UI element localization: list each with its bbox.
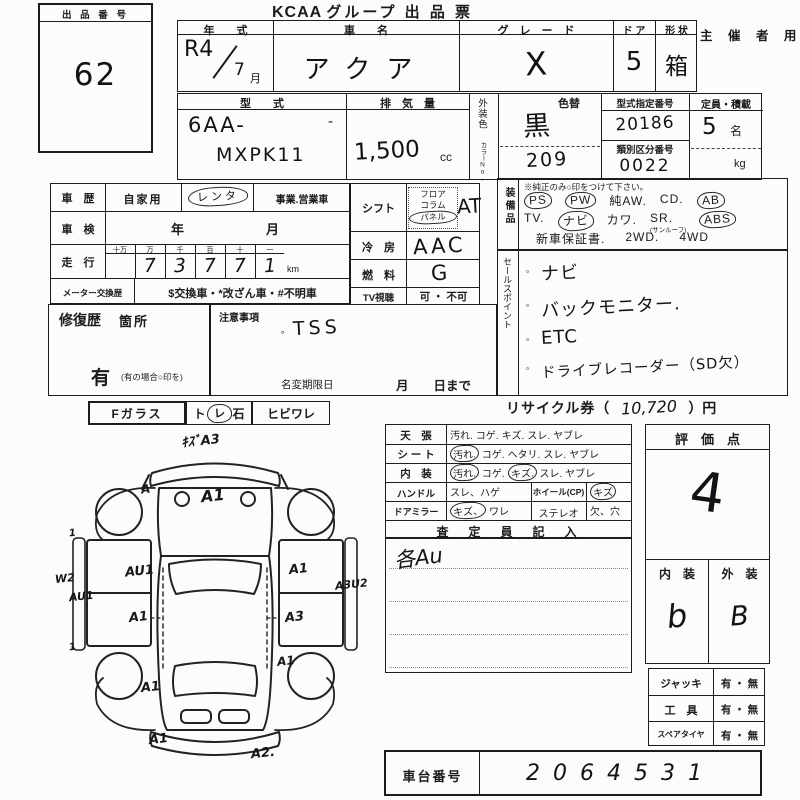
wheel-label: ホイール(CP) [531,486,586,498]
sales-points-label: セールスポイント [502,257,511,329]
shift-label: シフト [351,200,406,216]
damage-code: A3 [284,609,305,626]
bullet-mark: 。 [526,264,534,275]
jack-label: ジャッキ [649,676,713,691]
crack-option: ヒビワレ [252,401,330,425]
damage-code: A1 [140,679,161,696]
grade-value: X [458,41,614,87]
aircon-label: 冷 房 [351,239,406,255]
damage-annotations-layer: ｷｽﾞA3A1AAU1A1AU1W211A1A1A3A3U2A1A1A2. [55,428,375,775]
color-change-label: 色替 [558,95,580,111]
condition-table: 天 張 汚れ.コゲ.キズ.スレ.ヤブレ シ ー ト 汚れ.コゲ.ヘタリ.スレ.ヤ… [385,424,632,538]
accessories-table: ジャッキ 有 ・ 無 工 具 有 ・ 無 スペアタイヤ 有 ・ 無 [648,668,765,746]
grid-line [498,94,499,179]
front-glass-label: Fガラス [88,401,186,425]
meter-history-label: メーター交換歴 [51,287,134,299]
mileage-digit: 1 [254,254,285,278]
score-label: 評 価 点 [646,429,769,448]
sales-point-text: ETC [540,326,578,349]
option-item: ヘタリ. [508,446,541,461]
tools-value: 有 ・ 無 [713,702,766,717]
option-item: カワ. [607,211,637,228]
grid-line [649,721,764,722]
grid-line [351,287,479,288]
meter-history-options: $交換車・*改ざん車・#不明車 [134,285,351,301]
car-name-value: アクア [273,49,459,86]
option-item-circled: 汚れ. [450,444,480,462]
history-table: 車 歴 自家用 レンタ 事業.営業車 車 検 年 月 走 行 十万 万 千 百 … [50,183,350,304]
caution-value: TSS [292,316,341,340]
interior-grade-value: b [644,594,710,638]
grid-line [646,449,769,450]
repair-history-box: 修復歴 箇所 有 (有の場合○印を) [48,304,210,396]
history-business-option: 事業.営業車 [253,191,351,206]
option-item-circled: キズ [590,482,617,500]
tv-label: TV視聴 [351,290,406,304]
chassis-number-box: 車台番号 2064531 [384,750,762,796]
damage-code: AU1 [124,563,155,581]
color-value: 黒 [522,103,551,143]
drivetrain-table: シフト フロアコラムパネル AT 冷 房 AAC 燃 料 G TV視聴 可 ・ … [350,183,480,305]
stereo-label: ステレオ [531,505,586,520]
option-item: スレ、ハゲ [450,484,500,499]
mileage-digit: 7 [194,254,225,278]
dashed-divider [691,148,761,149]
mileage-digit: 3 [164,254,195,278]
equipment-box: 装備品 ※純正のみ○印をつけて下さい。 PSPW純AW.CD.AB TV.ナビカ… [497,178,788,250]
inspection-value: 年 月 [105,219,351,238]
vehicle-spec-table: 型 式 排 気 量 6AA- ‐ MXPK11 1,500 cc 外装色 カラー… [177,93,762,180]
interior-options: 汚れ.コゲ.キズ.スレ.ヤブレ [450,463,595,482]
mileage-digit-grid: 十万 万 千 百 十 一 7 3 7 7 1 [105,244,284,278]
headliner-label: 天 張 [386,428,446,443]
damage-code: A1 [200,485,225,506]
chassis-number-value: 2064531 [479,761,762,786]
interior-label: 内 装 [386,466,446,481]
auction-number-value: 62 [40,57,151,93]
sales-point-line: 。ナビ [526,259,783,285]
wheel-value: キズ [590,482,616,501]
damage-code: ｷｽﾞA3 [180,428,220,451]
form-title: KCAA グループ 出 品 票 [272,1,473,22]
type-approval-label: 型式指定番号 [601,96,689,110]
damage-code: A2. [250,745,275,762]
grid-line [181,184,182,211]
history-private-option: 自家用 [105,191,181,207]
grid-line [386,520,631,521]
aircon-value: AAC [412,233,466,260]
option-item: スレ. [543,446,566,461]
steering-label: ハンドル [386,486,446,500]
grid-line [51,211,349,212]
score-box: 評 価 点 4 内 装 外 装 b B [645,424,770,664]
option-item: CD. [660,192,684,206]
model-code-line2: MXPK11 [216,144,306,166]
grid-line [649,695,764,696]
exterior-grade-value: B [707,599,772,634]
sales-point-text: ドライブレコーダー（SD欠） [541,351,750,383]
grid-line [469,94,470,179]
model-code-line1: 6AA- [188,113,246,137]
sales-point-text: バックモニター. [540,289,681,322]
option-item: コラム [409,200,457,211]
grid-line [51,278,349,279]
inspection-label: 車 検 [51,221,105,237]
steering-options: スレ、ハゲ [450,482,500,501]
grid-line [406,184,407,304]
capacity-value: 5 [702,114,717,140]
ruled-line [389,601,628,602]
option-item-circled: 汚れ. [450,463,480,481]
auction-sheet: 出 品 番 号 62 KCAA グループ 出 品 票 主 催 者 用 年 式 車… [0,0,800,800]
capacity-unit2: kg [734,158,746,170]
assessor-notes-box: 各Au [385,538,632,673]
brand-logo: KCAA [272,4,322,21]
vehicle-header-table: 年 式 車 名 グ レ ー ド ド ア 形 状 R4 7 月 アクア X 5 箱 [177,20,697,92]
damage-code: A1 [128,609,149,626]
damage-code: AU1 [68,589,94,605]
form-title-text: グループ 出 品 票 [326,4,473,21]
seat-options: 汚れ.コゲ.ヘタリ.スレ.ヤブレ [450,444,599,463]
bullet-mark: 。 [526,361,534,372]
stone-chip-option: ト レ 石 [186,401,252,425]
option-item: ヤブレ [565,465,595,480]
capacity-unit: 名 [730,122,742,139]
equipment-line1: PSPW純AW.CD.AB [524,192,725,209]
spare-tire-label: スペアタイヤ [649,729,713,740]
mileage-unit: km [287,264,299,274]
option-item: フロア [409,189,457,200]
spare-tire-value: 有 ・ 無 [713,728,766,743]
option-item: キズ. [502,427,525,442]
caution-bullet: 。 [281,323,290,336]
history-rental-option: レンタ [183,187,253,206]
mileage-digit: 7 [224,254,255,278]
damage-code: 1 [68,642,76,654]
grid-line [351,231,479,232]
interior-grade-label: 内 装 [646,565,708,582]
year-month-value: 7 [234,60,245,80]
class-number-value: 0022 [601,156,689,176]
damage-code: A [140,482,151,497]
displacement-value: 1,500 [353,136,420,165]
grid-line [586,482,587,520]
option-item: 4WD [679,230,709,244]
damage-code: A1 [148,731,169,748]
recycle-fee: リサイクル券（ 10,720 ）円 [506,398,716,418]
rename-deadline-value: 月 日まで [396,375,471,394]
auction-number-label: 出 品 番 号 [40,7,151,21]
displacement-label: 排 気 量 [346,95,469,111]
damage-code: 1 [68,528,76,540]
model-code-label: 型 式 [178,95,346,111]
mileage-digit: 7 [134,254,165,278]
recycle-fee-value: 10,720 [610,396,689,419]
sales-point-line: 。ETC [526,327,783,348]
option-item: ワレ [489,503,509,518]
year-era-value: R4 [184,37,213,62]
door-mirror-label: ドアミラー [386,505,446,518]
equipment-label: 装備品 [501,187,516,226]
type-approval-value: 20186 [601,112,690,137]
tv-value: 可 ・ 不可 [406,289,481,304]
exterior-grade-label: 外 装 [708,565,771,582]
class-number-label: 類別区分番号 [601,142,689,156]
option-item: スレ. [539,465,562,480]
damage-code: A1 [288,561,309,578]
year-value: R4 7 月 [178,34,273,93]
option-item: コゲ. [482,465,505,480]
grid-line [518,251,519,395]
option-item: 汚れ. [450,427,473,442]
recycle-fee-suffix: ）円 [688,398,716,418]
bullet-mark: 。 [526,298,534,309]
option-item-circled: PW [565,191,597,210]
option-item-circled: PS [524,191,553,209]
recycle-fee-label: リサイクル券（ [506,398,610,418]
rename-deadline-label: 名変期限日 [281,377,334,392]
seat-label: シ ー ト [386,447,446,462]
color-code-value: 209 [525,148,568,172]
option-item: 2WD. [625,230,659,244]
jack-value: 有 ・ 無 [713,676,766,691]
repair-note: (有の場合○印を) [121,371,183,383]
shape-value: 箱 [655,47,698,81]
sales-point-line: 。ドライブレコーダー（SD欠） [526,356,783,377]
shape-label: 形 状 [655,22,698,37]
month-suffix: 月 [250,70,261,86]
option-item: コゲ. [482,446,505,461]
stone-chip-pre: ト [193,405,205,422]
capacity-label: 定員・積載 [689,96,763,111]
stone-chip-post: 石 [233,405,245,422]
ruled-line [389,634,628,635]
check-circled-mark: レ [206,403,232,423]
grid-line [601,110,689,111]
headliner-options: 汚れ.コゲ.キズ.スレ.ヤブレ [450,425,583,444]
door-label: ド ア [613,22,655,37]
option-item: コゲ. [476,427,499,442]
equipment-line3: 新車保証書.2WD.4WD [536,230,709,247]
damage-code: W2 [54,571,75,586]
option-item: ヤブレ [569,446,599,461]
damage-code: A3U2 [334,576,368,592]
bullet-mark: 。 [526,332,534,343]
damage-code: A1 [276,653,295,669]
caution-label: 注意事項 [219,309,259,324]
chassis-number-label: 車台番号 [386,766,479,785]
grid-line [40,21,151,22]
displacement-unit: cc [440,150,452,164]
option-item: TV. [524,211,545,225]
sales-points-box: セールスポイント 。ナビ。バックモニター.。ETC。ドライブレコーダー（SD欠） [497,250,788,396]
door-value: 5 [613,47,655,77]
color-no-label: カラーNo. [477,142,487,183]
door-mirror-options: キズ、ワレ [450,501,509,520]
option-item-circled: キズ. [507,463,537,481]
option-item: スレ. [527,427,550,442]
repair-location-label: 箇所 [119,311,149,330]
history-label: 車 歴 [51,190,105,206]
digit-header: 十万 [105,245,135,255]
sales-points-list: 。ナビ。バックモニター.。ETC。ドライブレコーダー（SD欠） [526,259,783,385]
mileage-label: 走 行 [51,254,105,270]
repair-label: 修復歴 [59,310,101,330]
option-item-circled: ナビ [557,210,594,232]
score-value: 4 [642,453,773,533]
shift-options-box: フロアコラムパネル [408,187,458,229]
grid-line [601,140,689,141]
assessor-note-value: 各Au [392,539,444,575]
exterior-color-label: 外装色 [474,98,488,130]
option-item-circled: ABS [699,210,737,229]
pen-tick: ‐ [328,114,333,130]
shift-value: AT [456,193,482,218]
repair-yes-label: 有 [91,363,110,390]
tools-label: 工 具 [649,702,713,718]
fuel-label: 燃 料 [351,267,406,283]
option-item: 欠、穴 [590,503,620,518]
grade-label: グ レ ー ド [459,22,613,38]
option-item-circled: AB [696,191,725,209]
option-item-circled: キズ、 [450,501,487,520]
sales-point-text: ナビ [540,258,579,286]
damage-diagram: ｷｽﾞA3A1AAU1A1AU1W211A1A1A3A3U2A1A1A2. [55,428,375,775]
option-item: 純AW. [609,192,647,209]
option-item: ヤブレ [553,427,583,442]
option-item-circled: パネル [409,210,458,226]
name-label: 車 名 [273,22,459,38]
sales-point-line: 。バックモニター. [526,293,783,319]
grid-line [446,425,447,520]
ruled-line [389,667,628,668]
fuel-value: G [430,261,448,286]
caution-box: 注意事項 。 TSS 名変期限日 月 日まで [210,304,497,396]
auction-number-box: 出 品 番 号 62 [38,3,153,153]
stereo-value: 欠、穴 [590,501,620,520]
dashed-divider [500,146,600,147]
option-item: 新車保証書. [536,230,605,247]
rental-circled-mark: レンタ [188,185,249,207]
grid-line [518,179,519,249]
organizer-use-label: 主 催 者 用 [700,25,800,44]
